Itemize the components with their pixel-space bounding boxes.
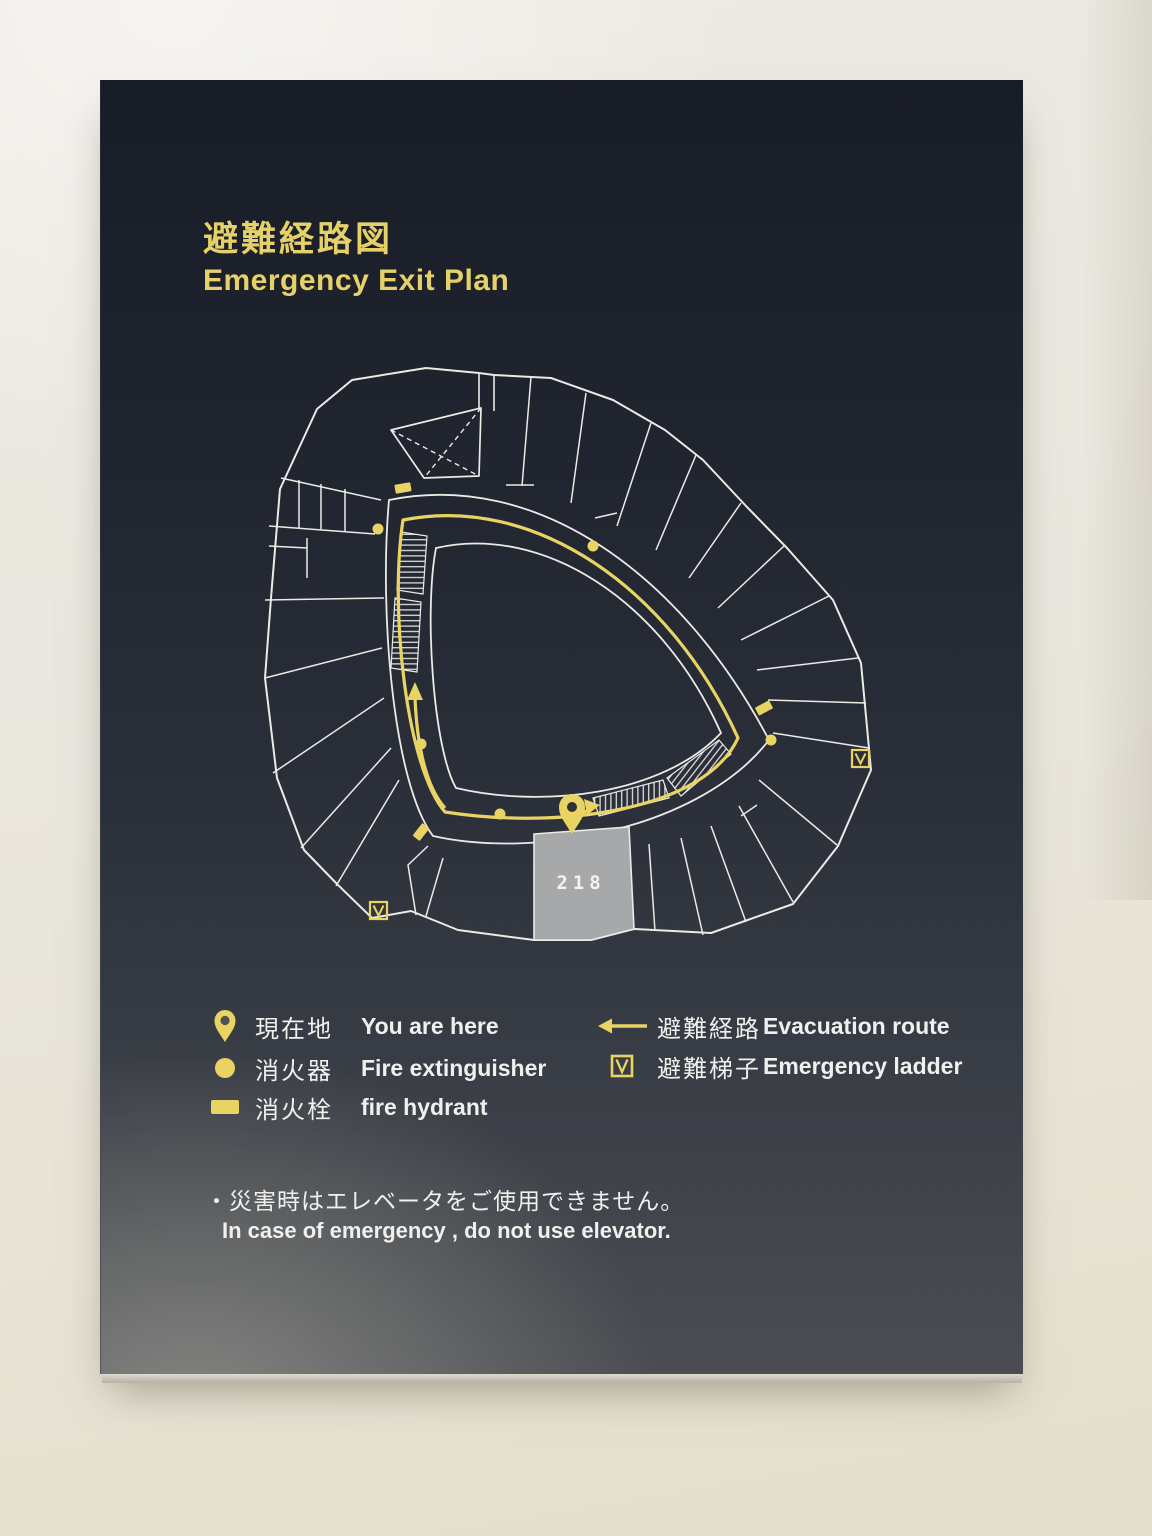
bent-wall xyxy=(408,846,428,915)
title-japanese: 避難経路図 xyxy=(203,218,509,262)
fire-hydrant-icon xyxy=(201,1099,249,1115)
legend-row-fire-extinguisher: 消火器 Fire extinguisher xyxy=(201,1048,546,1088)
legend-label-ja: 避難梯子 xyxy=(657,1049,763,1084)
legend-row-you-are-here: 現在地 You are here xyxy=(201,1006,499,1046)
floor-plan: 218 xyxy=(241,348,891,968)
top-notch-walls xyxy=(479,373,494,411)
you-are-here-pin-icon xyxy=(201,1008,249,1044)
legend-label-en: Emergency ladder xyxy=(763,1053,962,1080)
legend-label-en: Fire extinguisher xyxy=(361,1055,546,1082)
fire-extinguisher-icon xyxy=(201,1057,249,1079)
route-arrow-up-icon xyxy=(407,682,423,700)
fire-hydrant-marker xyxy=(755,700,773,715)
emergency-ladder-marker xyxy=(852,750,869,767)
legend-label-ja: 避難経路 xyxy=(657,1009,763,1044)
notice-english: In case of emergency , do not use elevat… xyxy=(205,1216,684,1246)
room-218-label: 218 xyxy=(556,872,605,894)
legend-row-fire-hydrant: 消火栓 fire hydrant xyxy=(201,1087,488,1127)
fire-extinguisher-marker xyxy=(766,735,777,746)
room-218: 218 xyxy=(534,827,634,940)
legend-row-emergency-ladder: 避難梯子 Emergency ladder xyxy=(593,1046,962,1086)
legend-label-ja: 現在地 xyxy=(255,1009,361,1044)
wall-corner-shadow xyxy=(1062,0,1152,900)
fire-extinguisher-marker xyxy=(495,809,506,820)
escalator-atrium xyxy=(391,408,481,478)
legend-label-ja: 消火器 xyxy=(255,1051,361,1086)
fire-extinguisher-marker xyxy=(373,524,384,535)
sign-title: 避難経路図 Emergency Exit Plan xyxy=(203,218,509,300)
legend-label-en: fire hydrant xyxy=(361,1094,488,1121)
notice-japanese: ・災害時はエレベータをご使用できません。 xyxy=(205,1186,684,1216)
inner-courtyard xyxy=(431,544,721,797)
small-room-cluster xyxy=(269,478,381,578)
legend-label-ja: 消火栓 xyxy=(255,1090,361,1125)
you-are-here-pin-icon xyxy=(559,794,585,834)
fire-extinguisher-marker xyxy=(416,739,427,750)
stairs-left xyxy=(391,532,427,672)
legend-row-evacuation-route: 避難経路 Evacuation route xyxy=(593,1006,950,1046)
legend-label-en: You are here xyxy=(361,1013,499,1040)
stairs-bottom xyxy=(593,740,731,816)
evacuation-route-arrow-icon xyxy=(593,1015,651,1037)
emergency-ladder-icon xyxy=(593,1054,651,1078)
fire-hydrant-marker xyxy=(394,482,411,494)
emergency-exit-plan-sign: 避難経路図 Emergency Exit Plan xyxy=(100,80,1023,1374)
elevator-notice: ・災害時はエレベータをご使用できません。 In case of emergenc… xyxy=(205,1186,684,1246)
title-english: Emergency Exit Plan xyxy=(203,262,509,300)
legend-label-en: Evacuation route xyxy=(763,1013,950,1040)
fire-extinguisher-marker xyxy=(588,541,599,552)
